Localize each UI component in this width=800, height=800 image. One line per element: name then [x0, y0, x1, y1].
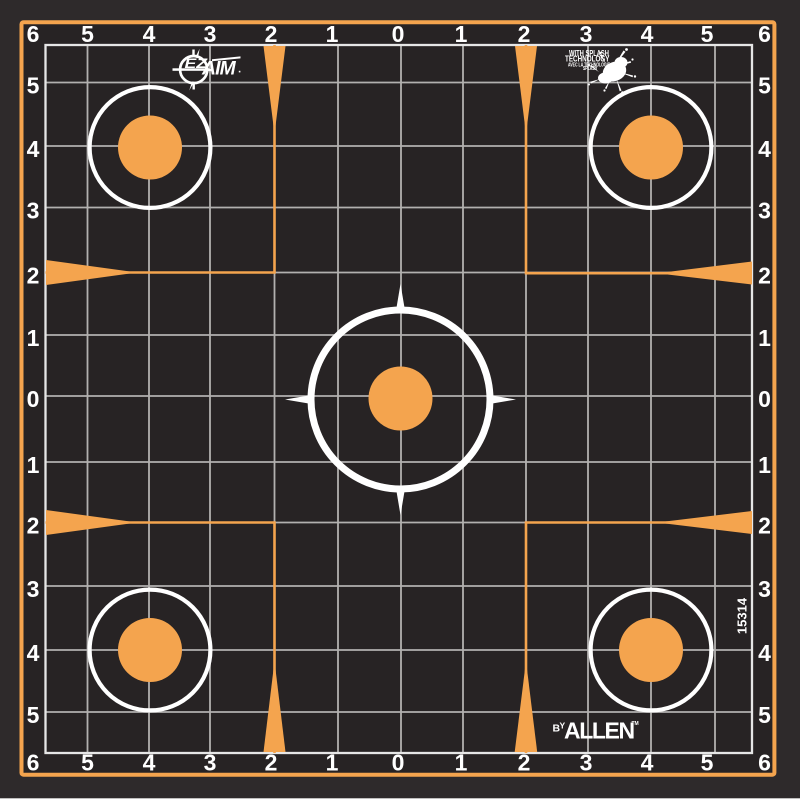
svg-text:2: 2	[518, 21, 531, 47]
svg-text:6: 6	[758, 750, 771, 776]
svg-text:4: 4	[143, 750, 156, 776]
svg-text:3: 3	[580, 21, 593, 47]
svg-text:4: 4	[758, 640, 771, 666]
svg-text:1: 1	[27, 325, 40, 351]
svg-text:4: 4	[27, 640, 40, 666]
svg-text:5: 5	[27, 73, 40, 99]
svg-text:AIM: AIM	[201, 58, 237, 79]
svg-text:5: 5	[758, 702, 771, 728]
svg-text:ALLEN: ALLEN	[564, 718, 634, 744]
svg-text:6: 6	[758, 21, 771, 47]
svg-text:6: 6	[27, 21, 40, 47]
svg-text:5: 5	[701, 750, 714, 776]
svg-text:3: 3	[204, 21, 217, 47]
svg-text:0: 0	[392, 750, 405, 776]
svg-text:2: 2	[758, 263, 771, 289]
svg-text:0: 0	[392, 21, 405, 47]
svg-text:3: 3	[204, 750, 217, 776]
svg-text:4: 4	[27, 136, 40, 162]
svg-text:1: 1	[758, 452, 771, 478]
svg-text:2: 2	[518, 750, 531, 776]
svg-text:4: 4	[641, 21, 654, 47]
svg-text:1: 1	[758, 325, 771, 351]
svg-text:0: 0	[758, 386, 771, 412]
svg-text:3: 3	[580, 750, 593, 776]
svg-text:4: 4	[641, 750, 654, 776]
svg-text:5: 5	[758, 73, 771, 99]
svg-text:5: 5	[27, 702, 40, 728]
svg-text:1: 1	[326, 750, 339, 776]
svg-text:3: 3	[758, 198, 771, 224]
svg-text:2: 2	[27, 513, 40, 539]
svg-text:1: 1	[455, 750, 468, 776]
svg-text:2: 2	[265, 21, 278, 47]
svg-text:2: 2	[758, 513, 771, 539]
svg-text:15314: 15314	[735, 597, 750, 634]
svg-text:3: 3	[27, 198, 40, 224]
svg-text:2: 2	[265, 750, 278, 776]
svg-text:4: 4	[758, 136, 771, 162]
svg-text:1: 1	[455, 21, 468, 47]
svg-text:1: 1	[27, 452, 40, 478]
svg-text:5: 5	[701, 21, 714, 47]
svg-text:4: 4	[143, 21, 156, 47]
svg-text:3: 3	[27, 576, 40, 602]
svg-text:0: 0	[27, 386, 40, 412]
svg-text:1: 1	[326, 21, 339, 47]
svg-text:3: 3	[758, 576, 771, 602]
svg-text:5: 5	[81, 21, 94, 47]
svg-text:5: 5	[81, 750, 94, 776]
svg-text:2: 2	[27, 263, 40, 289]
svg-text:TM: TM	[632, 721, 639, 727]
svg-text:6: 6	[27, 750, 40, 776]
